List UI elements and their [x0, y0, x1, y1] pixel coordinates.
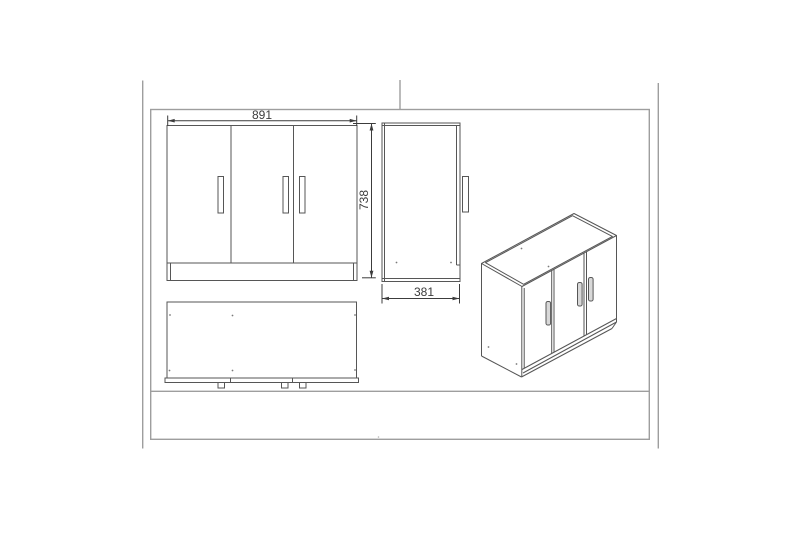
- iso-plinth-top-edge: [523, 322, 617, 373]
- technical-drawing-canvas: 891 738 381: [0, 0, 800, 533]
- iso-door-handle: [589, 278, 594, 302]
- depth-dimension-label: 381: [414, 285, 434, 299]
- foot-tab: [282, 383, 289, 389]
- screw-mark-dot: [169, 370, 171, 372]
- screw-mark-dot: [396, 262, 398, 264]
- side-view: [382, 123, 469, 282]
- height-dimension-label: 738: [357, 190, 371, 210]
- bottom-view: [165, 302, 359, 388]
- iso-left-bottom-edge: [482, 356, 522, 377]
- side-outline: [382, 123, 460, 282]
- drawing-frame: [143, 80, 659, 449]
- arrowhead: [168, 119, 175, 123]
- front-door-handle: [300, 177, 306, 214]
- arrowhead: [382, 297, 389, 301]
- screw-mark-dot: [516, 363, 518, 365]
- cabinet-blueprint-svg: 891 738 381: [0, 0, 800, 533]
- screw-mark-dot: [232, 315, 234, 317]
- iso-doors-bottom-edge: [522, 319, 617, 370]
- front-view: [167, 126, 357, 281]
- isometric-view: [482, 214, 617, 378]
- depth-dimension: 381: [382, 284, 460, 304]
- iso-plinth-bottom-edge: [522, 329, 613, 378]
- iso-top-face-inner-edge: [486, 216, 613, 285]
- screw-mark-dot: [232, 370, 234, 372]
- screw-mark-dot: [548, 266, 550, 268]
- height-dimension: 738: [353, 124, 376, 278]
- front-door-handle: [218, 177, 224, 214]
- screw-mark-dot: [450, 262, 452, 264]
- speck-dot: [378, 436, 380, 438]
- iso-door-handle: [578, 283, 583, 307]
- screw-mark-dot: [488, 346, 490, 348]
- width-dimension-label: 891: [252, 108, 272, 122]
- bottom-edge-strip: [165, 378, 359, 383]
- arrowhead: [453, 297, 460, 301]
- iso-top-face: [482, 214, 617, 287]
- screw-mark-dot: [521, 248, 523, 250]
- arrowhead: [370, 124, 374, 131]
- arrowhead: [370, 271, 374, 278]
- arrowhead: [350, 119, 357, 123]
- foot-tab: [218, 383, 225, 389]
- screw-mark-dot: [354, 369, 356, 371]
- bottom-outline: [167, 302, 357, 378]
- frame-border: [151, 110, 650, 440]
- front-door-handle: [283, 177, 289, 214]
- iso-door-handle: [546, 302, 551, 326]
- side-door-handle: [463, 177, 469, 213]
- front-outline: [167, 126, 357, 281]
- width-dimension: 891: [168, 108, 357, 126]
- screw-mark-dot: [169, 314, 171, 316]
- foot-tab: [300, 383, 307, 389]
- screw-mark-dot: [354, 314, 356, 316]
